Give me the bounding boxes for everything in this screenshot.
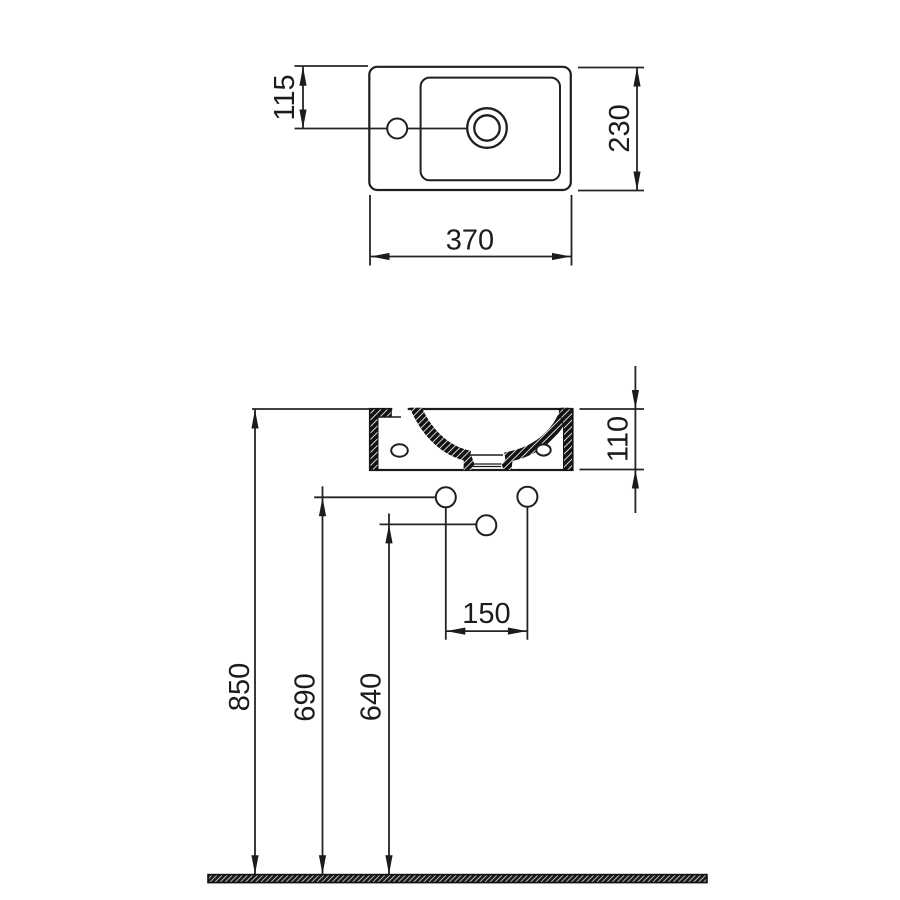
svg-text:115: 115 bbox=[269, 74, 301, 120]
svg-text:850: 850 bbox=[224, 663, 256, 711]
svg-text:690: 690 bbox=[290, 673, 322, 721]
svg-text:230: 230 bbox=[604, 104, 636, 152]
svg-text:640: 640 bbox=[356, 673, 388, 721]
svg-text:370: 370 bbox=[446, 225, 494, 257]
svg-text:110: 110 bbox=[603, 416, 635, 462]
svg-text:150: 150 bbox=[462, 598, 510, 630]
